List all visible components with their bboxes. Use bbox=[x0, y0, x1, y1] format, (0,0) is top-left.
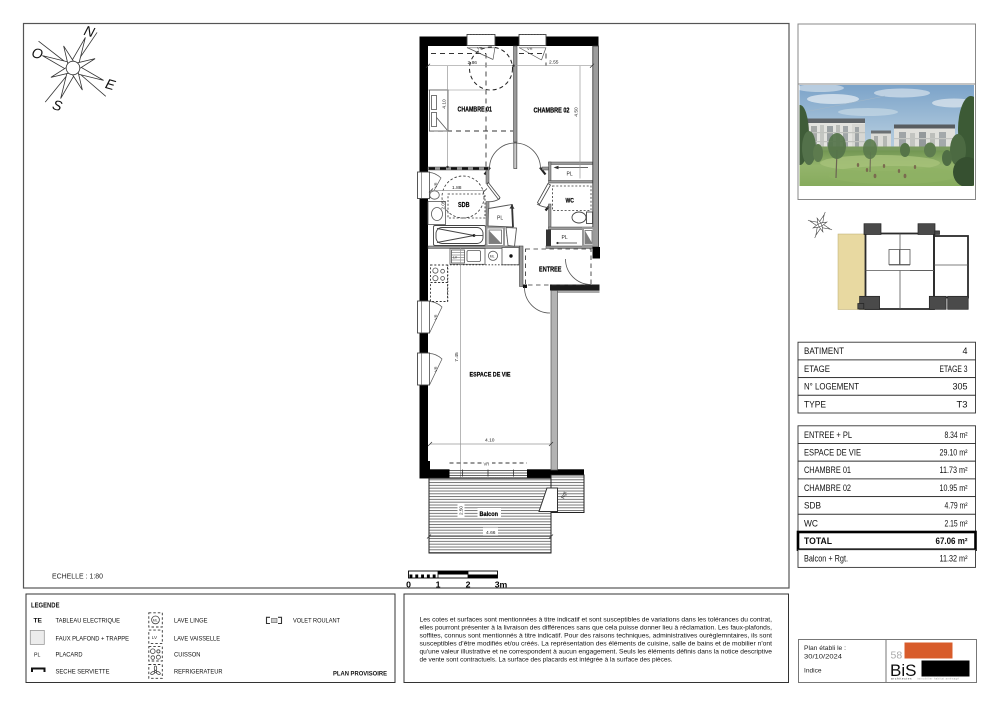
svg-text:8.34 m²: 8.34 m² bbox=[945, 430, 968, 440]
svg-text:4.79 m²: 4.79 m² bbox=[945, 501, 968, 511]
svg-text:PLACARD: PLACARD bbox=[56, 652, 83, 659]
svg-text:10.95 m²: 10.95 m² bbox=[940, 483, 968, 493]
svg-text:7.45: 7.45 bbox=[454, 352, 460, 362]
svg-text:ECHELLE : 1:80: ECHELLE : 1:80 bbox=[52, 574, 103, 581]
svg-text:ETAGE 3: ETAGE 3 bbox=[940, 364, 968, 374]
svg-text:BATIMENT: BATIMENT bbox=[804, 346, 844, 356]
svg-text:Plan établi le :: Plan établi le : bbox=[804, 645, 846, 652]
svg-text:ESPACE DE VIE: ESPACE DE VIE bbox=[804, 448, 861, 458]
svg-text:VR: VR bbox=[433, 182, 438, 188]
svg-text:1: 1 bbox=[436, 580, 441, 590]
svg-text:VR: VR bbox=[433, 366, 438, 372]
svg-text:Indice: Indice bbox=[804, 668, 822, 675]
svg-text:2.15 m²: 2.15 m² bbox=[945, 518, 968, 528]
svg-text:LV: LV bbox=[453, 256, 458, 260]
svg-text:305: 305 bbox=[953, 382, 968, 392]
svg-text:VR: VR bbox=[477, 46, 483, 51]
svg-text:PL: PL bbox=[567, 172, 573, 178]
svg-text:ESPACE DE VIE: ESPACE DE VIE bbox=[470, 372, 512, 379]
svg-text:SECHE SERVIETTE: SECHE SERVIETTE bbox=[56, 669, 110, 676]
svg-text:TABLEAU ELECTRIQUE: TABLEAU ELECTRIQUE bbox=[56, 618, 121, 625]
svg-text:soffites, connus sont mentionn: soffites, connus sont mentionnés à titre… bbox=[420, 633, 773, 640]
svg-text:PL: PL bbox=[562, 235, 568, 241]
svg-text:PLAN PROVISOIRE: PLAN PROVISOIRE bbox=[333, 671, 387, 678]
svg-text:ETAGE: ETAGE bbox=[804, 364, 830, 374]
svg-text:11.73 m²: 11.73 m² bbox=[940, 465, 968, 475]
svg-text:PL: PL bbox=[497, 216, 503, 222]
svg-text:PL: PL bbox=[34, 653, 40, 659]
svg-text:LAVE VAISSELLE: LAVE VAISSELLE bbox=[174, 636, 220, 643]
svg-text:TOTAL: TOTAL bbox=[804, 536, 832, 546]
svg-text:VOLET ROULANT: VOLET ROULANT bbox=[293, 618, 340, 625]
svg-text:qu'une valeur illustrative et: qu'une valeur illustrative et ne corresp… bbox=[420, 649, 773, 656]
svg-text:VR: VR bbox=[484, 462, 490, 467]
svg-text:Les cotes et surfaces sont men: Les cotes et surfaces sont mentionnées à… bbox=[420, 617, 773, 624]
svg-text:29.10 m²: 29.10 m² bbox=[940, 448, 968, 458]
svg-text:VR: VR bbox=[527, 46, 533, 51]
svg-text:4.50: 4.50 bbox=[574, 107, 580, 117]
svg-text:VR: VR bbox=[433, 314, 438, 320]
svg-text:TYPE: TYPE bbox=[804, 399, 826, 409]
svg-text:CHAMBRE 01: CHAMBRE 01 bbox=[804, 465, 851, 475]
svg-text:CHAMBRE 02: CHAMBRE 02 bbox=[534, 108, 570, 115]
svg-text:2.50: 2.50 bbox=[459, 505, 464, 515]
svg-text:WC: WC bbox=[804, 518, 818, 528]
svg-text:4.66: 4.66 bbox=[486, 530, 496, 536]
svg-text:CHAMBRE 01: CHAMBRE 01 bbox=[458, 107, 493, 114]
svg-text:LAVE LINGE: LAVE LINGE bbox=[174, 618, 208, 625]
svg-text:T3: T3 bbox=[957, 399, 968, 409]
svg-text:CHAMBRE 02: CHAMBRE 02 bbox=[804, 483, 851, 493]
svg-text:susceptibles d'être modifiés e: susceptibles d'être modifiés et/ou créés… bbox=[420, 641, 773, 648]
svg-text:1.88: 1.88 bbox=[452, 185, 462, 191]
svg-text:4.10: 4.10 bbox=[442, 99, 448, 109]
svg-text:immobilier habitat aménagé: immobilier habitat aménagé bbox=[917, 677, 959, 681]
svg-text:ENTREE + PL: ENTREE + PL bbox=[804, 430, 852, 440]
svg-text:Balcon + Rgt.: Balcon + Rgt. bbox=[804, 554, 848, 564]
svg-text:2.86: 2.86 bbox=[468, 60, 478, 66]
svg-text:Balcon: Balcon bbox=[480, 511, 499, 518]
svg-text:elles pourront présenter à la: elles pourront présenter à la livraison … bbox=[420, 625, 773, 632]
svg-text:3m: 3m bbox=[495, 580, 508, 590]
svg-text:2.05: 2.05 bbox=[441, 200, 446, 210]
svg-text:CUISSON: CUISSON bbox=[174, 652, 201, 659]
svg-text:N° LOGEMENT: N° LOGEMENT bbox=[804, 382, 859, 392]
svg-text:architectes: architectes bbox=[891, 677, 912, 681]
svg-text:SDB: SDB bbox=[458, 202, 470, 209]
svg-text:ML: ML bbox=[490, 255, 495, 259]
svg-text:LEGENDE: LEGENDE bbox=[31, 603, 60, 610]
svg-text:de vente sont contractuels. La: de vente sont contractuels. La surface d… bbox=[420, 657, 673, 664]
svg-text:4: 4 bbox=[963, 346, 968, 356]
svg-text:ENTREE: ENTREE bbox=[539, 267, 562, 274]
svg-text:58: 58 bbox=[891, 650, 903, 662]
svg-text:TE: TE bbox=[34, 618, 43, 625]
svg-text:0: 0 bbox=[406, 580, 411, 590]
svg-text:LV: LV bbox=[152, 635, 158, 640]
svg-text:SDB: SDB bbox=[804, 501, 821, 511]
svg-text:ML: ML bbox=[153, 619, 158, 623]
svg-text:2: 2 bbox=[466, 580, 471, 590]
svg-text:2.55: 2.55 bbox=[549, 60, 559, 66]
svg-text:FAUX PLAFOND + TRAPPE: FAUX PLAFOND + TRAPPE bbox=[56, 636, 130, 643]
svg-text:4.10: 4.10 bbox=[485, 438, 495, 444]
svg-text:30/10/2024: 30/10/2024 bbox=[804, 654, 842, 661]
svg-text:WC: WC bbox=[566, 198, 575, 205]
svg-text:REFRIGERATEUR: REFRIGERATEUR bbox=[174, 669, 223, 676]
svg-text:11.32 m²: 11.32 m² bbox=[940, 554, 968, 564]
svg-text:67.06 m²: 67.06 m² bbox=[936, 536, 968, 546]
